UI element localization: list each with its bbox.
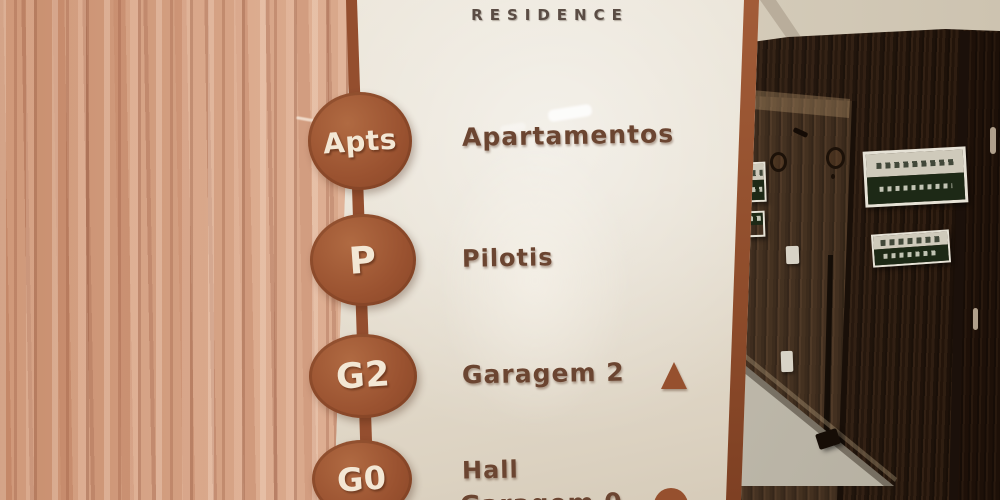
peephole-icon (826, 147, 845, 169)
floor-badge-g2: G2 (309, 334, 417, 418)
badge-label: G0 (336, 458, 388, 499)
badge-label: G2 (335, 354, 392, 398)
photo-building-directory: Apts P G2 G0 RESIDENCE Apartamentos Pilo… (0, 0, 1000, 500)
light-switch (781, 351, 794, 372)
door-sign-illegible-text (867, 172, 965, 205)
door-dot (831, 174, 835, 179)
floor-row-label-hall: Hall (462, 456, 519, 485)
floor-row-label-apartamentos: Apartamentos (462, 119, 675, 152)
door-handle (973, 308, 978, 330)
floor-badge-p: P (310, 214, 416, 306)
door-safety-sign (863, 146, 969, 207)
peephole-icon (770, 152, 787, 172)
floor-row-label-garagem-0: Garagem 0 (460, 488, 623, 500)
light-switch (786, 246, 800, 264)
sign-header: RESIDENCE (420, 6, 680, 24)
floor-row-label-garagem-2: Garagem 2 (462, 358, 625, 390)
up-triangle-icon (661, 362, 687, 389)
door-handle (990, 127, 996, 154)
floor-row-label-pilotis: Pilotis (462, 243, 554, 273)
badge-label: Apts (322, 122, 398, 160)
door-safety-sign (871, 229, 951, 267)
floor-badge-apts: Apts (308, 92, 412, 190)
badge-label: P (348, 238, 379, 283)
panel-reflection (430, 150, 640, 440)
